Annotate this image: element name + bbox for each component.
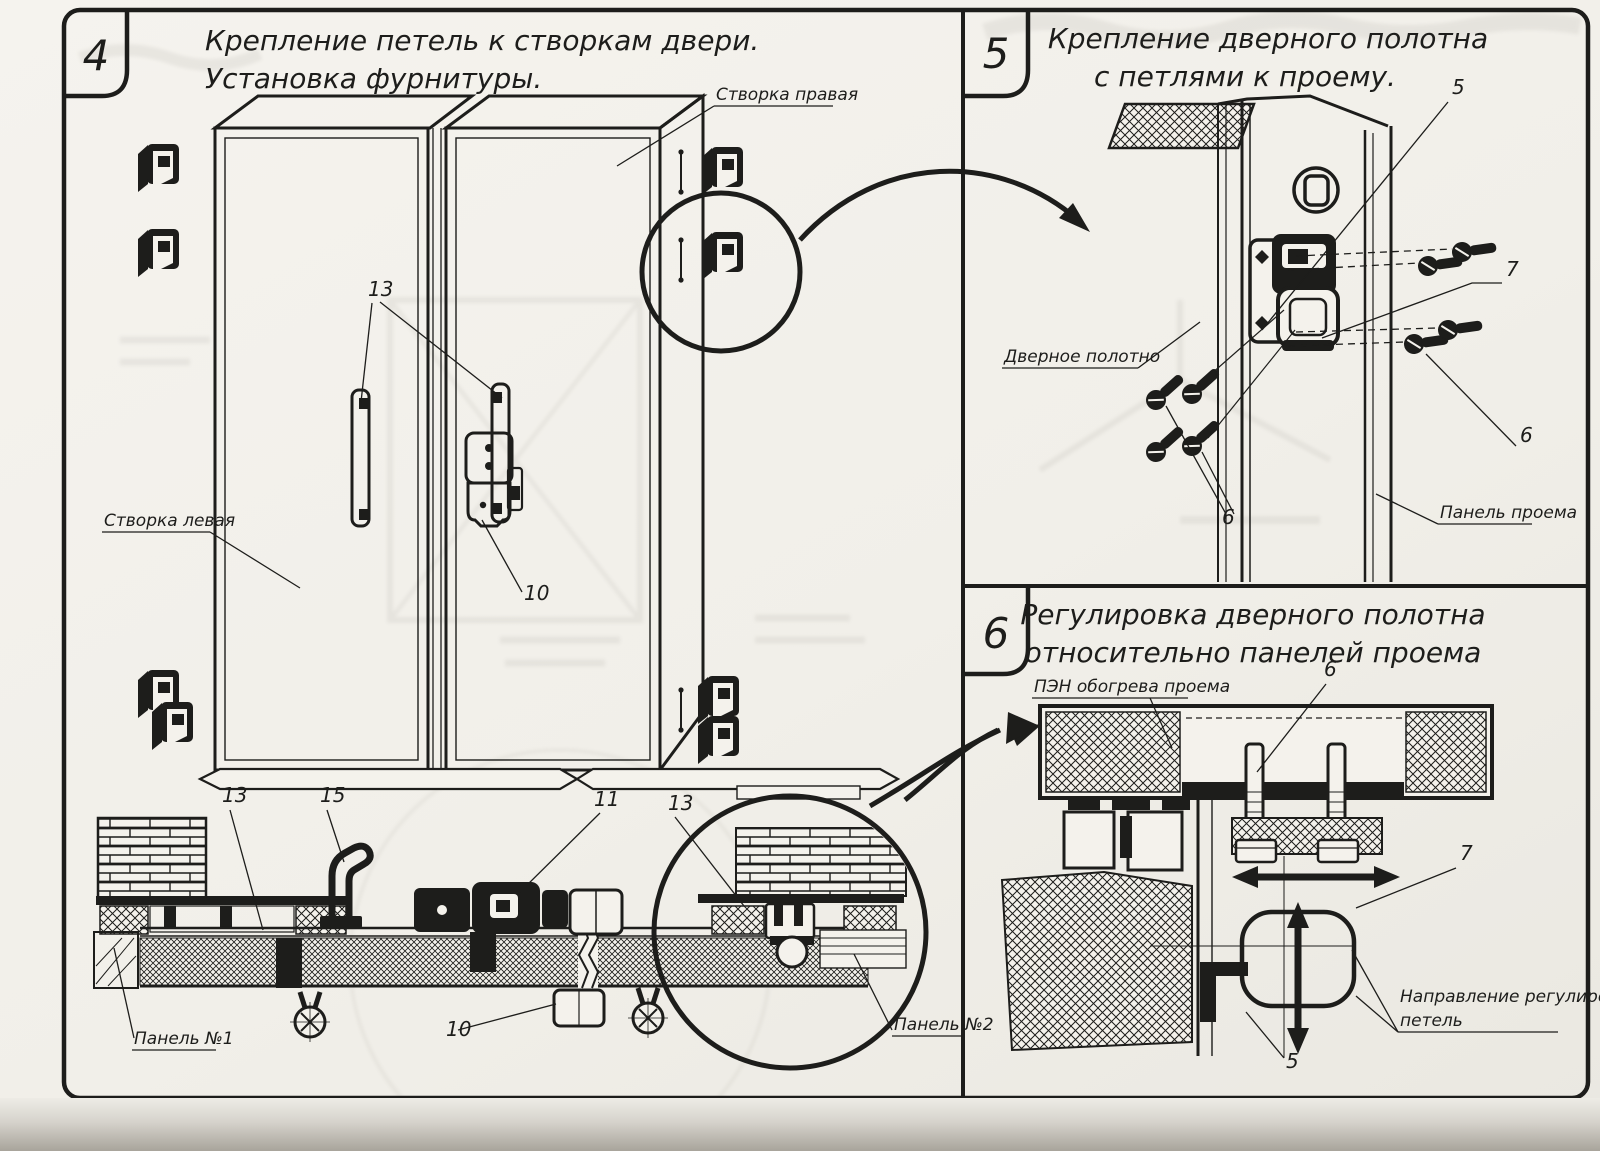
caster-wheel-right — [628, 988, 668, 1038]
label-right-leaf: Створка правая — [716, 85, 858, 105]
section4-title-line1: Крепление петель к створкам двери. — [205, 24, 759, 57]
scan-edge-shadow — [0, 1098, 1600, 1151]
section6-title-line1: Регулировка дверного полотна — [1020, 598, 1485, 631]
label-panel-1: Панель №1 — [134, 1029, 234, 1049]
label-left-leaf: Створка левая — [104, 511, 235, 531]
label-heater-pen: ПЭН обогрева проема — [1034, 677, 1230, 697]
label-opening-panel: Панель проема — [1440, 503, 1577, 523]
callout-6-bolt: 6 — [1324, 657, 1337, 681]
callout-13-hinge-section: 13 — [668, 791, 693, 815]
label-panel-2: Панель №2 — [894, 1015, 994, 1035]
door-edge-with-hinge — [1109, 96, 1391, 582]
label-adjust-direction-line2: петель — [1400, 1011, 1463, 1031]
caster-wheel-left — [290, 992, 330, 1042]
section4-number: 4 — [83, 31, 110, 80]
callout-13-sill: 13 — [222, 783, 247, 807]
callout-10-handle: 10 — [524, 581, 549, 605]
callout-5-loop: 5 — [1286, 1049, 1299, 1073]
callout-7-strap: 7 — [1506, 257, 1519, 281]
callout-5-hinge: 5 — [1452, 75, 1465, 99]
section5-number: 5 — [983, 29, 1010, 78]
section6-number: 6 — [983, 609, 1010, 658]
callout-10-receiver: 10 — [446, 1017, 471, 1041]
label-adjust-direction-line1: Направление регулировки — [1400, 987, 1600, 1007]
label-door-leaf: Дверное полотно — [1003, 347, 1160, 367]
callout-6-screws-left: 6 — [1222, 505, 1235, 529]
technical-drawing: 4 5 6 Крепление петель к створкам двери.… — [0, 0, 1600, 1151]
scanned-instruction-sheet: 4 5 6 Крепление петель к створкам двери.… — [0, 0, 1600, 1151]
section4-title-line2: Установка фурнитуры. — [205, 62, 542, 95]
section6-title-line2: относительно панелей проема — [1025, 636, 1482, 669]
section5-title-line1: Крепление дверного полотна — [1048, 22, 1488, 55]
callout-13-hinge-plates: 13 — [368, 277, 393, 301]
callout-7-hinge-body: 7 — [1460, 841, 1473, 865]
callout-6-screws-right: 6 — [1520, 423, 1533, 447]
callout-15-bracket: 15 — [320, 783, 345, 807]
section5-title-line2: с петлями к проему. — [1094, 60, 1396, 93]
callout-11-lock: 11 — [594, 787, 619, 811]
door-leaves-drawing — [215, 96, 703, 770]
